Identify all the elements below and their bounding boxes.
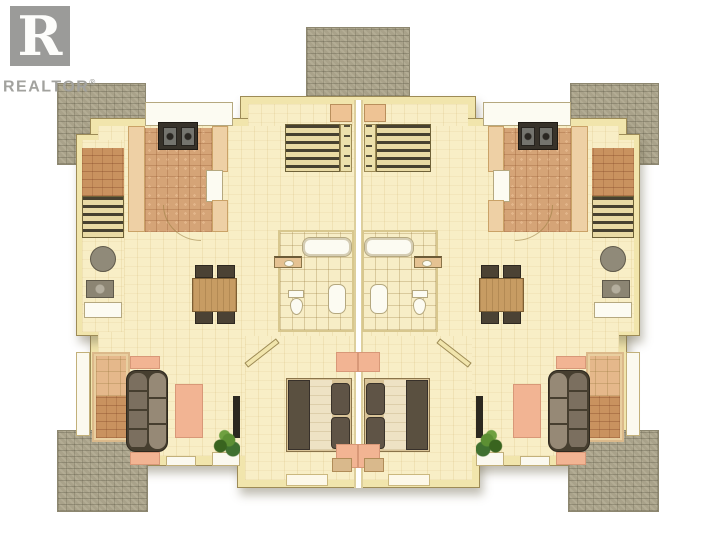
stove — [518, 122, 558, 150]
sofa-back-cushions — [569, 373, 587, 449]
unit-right — [358, 0, 642, 555]
hall-upper-landing — [592, 148, 634, 196]
bedroom-chamfer-wall — [244, 338, 279, 367]
living-window — [166, 456, 196, 466]
hall-staircase — [592, 196, 634, 238]
realtor-logo-r: R — [18, 9, 63, 63]
realtor-brand-name: REALTOR — [3, 78, 89, 95]
bedroom-patio-door — [332, 458, 352, 472]
dining-chair — [503, 311, 521, 324]
sofa — [126, 370, 168, 452]
kitchen-counter-right-lower — [488, 200, 504, 232]
toilet-tank — [288, 290, 304, 298]
dining-chair — [195, 265, 213, 278]
main-staircase — [285, 124, 340, 172]
hall-door — [84, 302, 122, 318]
bed-footboard-spread — [406, 380, 428, 450]
hall-staircase — [82, 196, 124, 238]
fireplace — [586, 352, 624, 442]
dining-chair — [481, 311, 499, 324]
vanity — [274, 256, 302, 268]
bed-mattress — [310, 380, 332, 450]
stove-burner — [539, 127, 553, 146]
dining-table — [479, 278, 524, 312]
kitchen-counter-left — [128, 126, 145, 232]
door-swing-arc — [163, 205, 201, 241]
bedroom-patio-door — [364, 458, 384, 472]
unit-left — [74, 0, 358, 555]
bed-pillow — [331, 383, 350, 415]
kitchen-counter-right — [488, 126, 504, 172]
stair-rail — [340, 124, 352, 172]
fireplace-brick — [96, 396, 126, 438]
realtor-logo-text: REALTOR® — [3, 78, 97, 96]
potted-plant — [476, 428, 504, 458]
sofa-mat-lower — [130, 452, 160, 465]
bed-mattress — [384, 380, 406, 450]
realtor-logo-mark: R — [10, 6, 70, 66]
dryer — [86, 280, 114, 298]
stair-rail — [364, 124, 376, 172]
washer — [600, 246, 626, 272]
registered-trademark-symbol: ® — [89, 78, 96, 87]
stove-burner — [163, 127, 177, 146]
bedroom-chamfer-wall — [436, 338, 471, 367]
sofa-seat-cushions — [149, 373, 166, 449]
dining-table — [192, 278, 237, 312]
sofa — [548, 370, 590, 452]
bed-pillow — [366, 383, 385, 415]
floor-plan-image: R REALTOR® — [0, 0, 716, 555]
dining-chair — [481, 265, 499, 278]
kitchen-counter-right-lower — [212, 200, 228, 232]
refrigerator — [493, 170, 510, 202]
dining-chair — [217, 265, 235, 278]
stove — [158, 122, 198, 150]
stove-burner — [521, 127, 535, 146]
kitchen-counter-left — [571, 126, 588, 232]
bathtub — [302, 237, 352, 257]
front-door — [364, 104, 386, 122]
door-swing-arc — [515, 205, 553, 241]
bathtub — [364, 237, 414, 257]
kitchen-counter-right — [212, 126, 228, 172]
dining-chair — [217, 311, 235, 324]
dining-chair — [503, 265, 521, 278]
fireplace — [92, 352, 130, 442]
bed-footboard-spread — [288, 380, 310, 450]
bedroom-rug-upper — [336, 352, 358, 372]
living-area-rug — [175, 384, 203, 438]
stove-burner — [181, 127, 195, 146]
bedroom-window — [388, 474, 430, 486]
living-window — [520, 456, 550, 466]
hall-upper-landing — [82, 148, 124, 196]
vanity-sink — [284, 260, 294, 267]
vanity — [414, 256, 442, 268]
pedestal-sink — [328, 284, 346, 314]
sofa-mat-upper — [130, 356, 160, 369]
washer — [90, 246, 116, 272]
sofa-seat-cushions — [550, 373, 567, 449]
fireplace-brick — [590, 396, 620, 438]
living-area-rug — [513, 384, 541, 438]
refrigerator — [206, 170, 223, 202]
dryer — [602, 280, 630, 298]
bedroom-rug-upper — [358, 352, 380, 372]
toilet-tank — [412, 290, 428, 298]
fireplace-hearth-tile — [590, 356, 620, 396]
main-staircase — [376, 124, 431, 172]
living-bay-window — [76, 352, 90, 436]
fireplace-hearth-tile — [96, 356, 126, 396]
pedestal-sink — [370, 284, 388, 314]
front-door — [330, 104, 352, 122]
living-bay-window — [626, 352, 640, 436]
dining-chair — [195, 311, 213, 324]
hall-door — [594, 302, 632, 318]
sofa-back-cushions — [129, 373, 147, 449]
vanity-sink — [422, 260, 432, 267]
potted-plant — [212, 428, 240, 458]
sofa-mat-lower — [556, 452, 586, 465]
bedroom-window — [286, 474, 328, 486]
sofa-mat-upper — [556, 356, 586, 369]
